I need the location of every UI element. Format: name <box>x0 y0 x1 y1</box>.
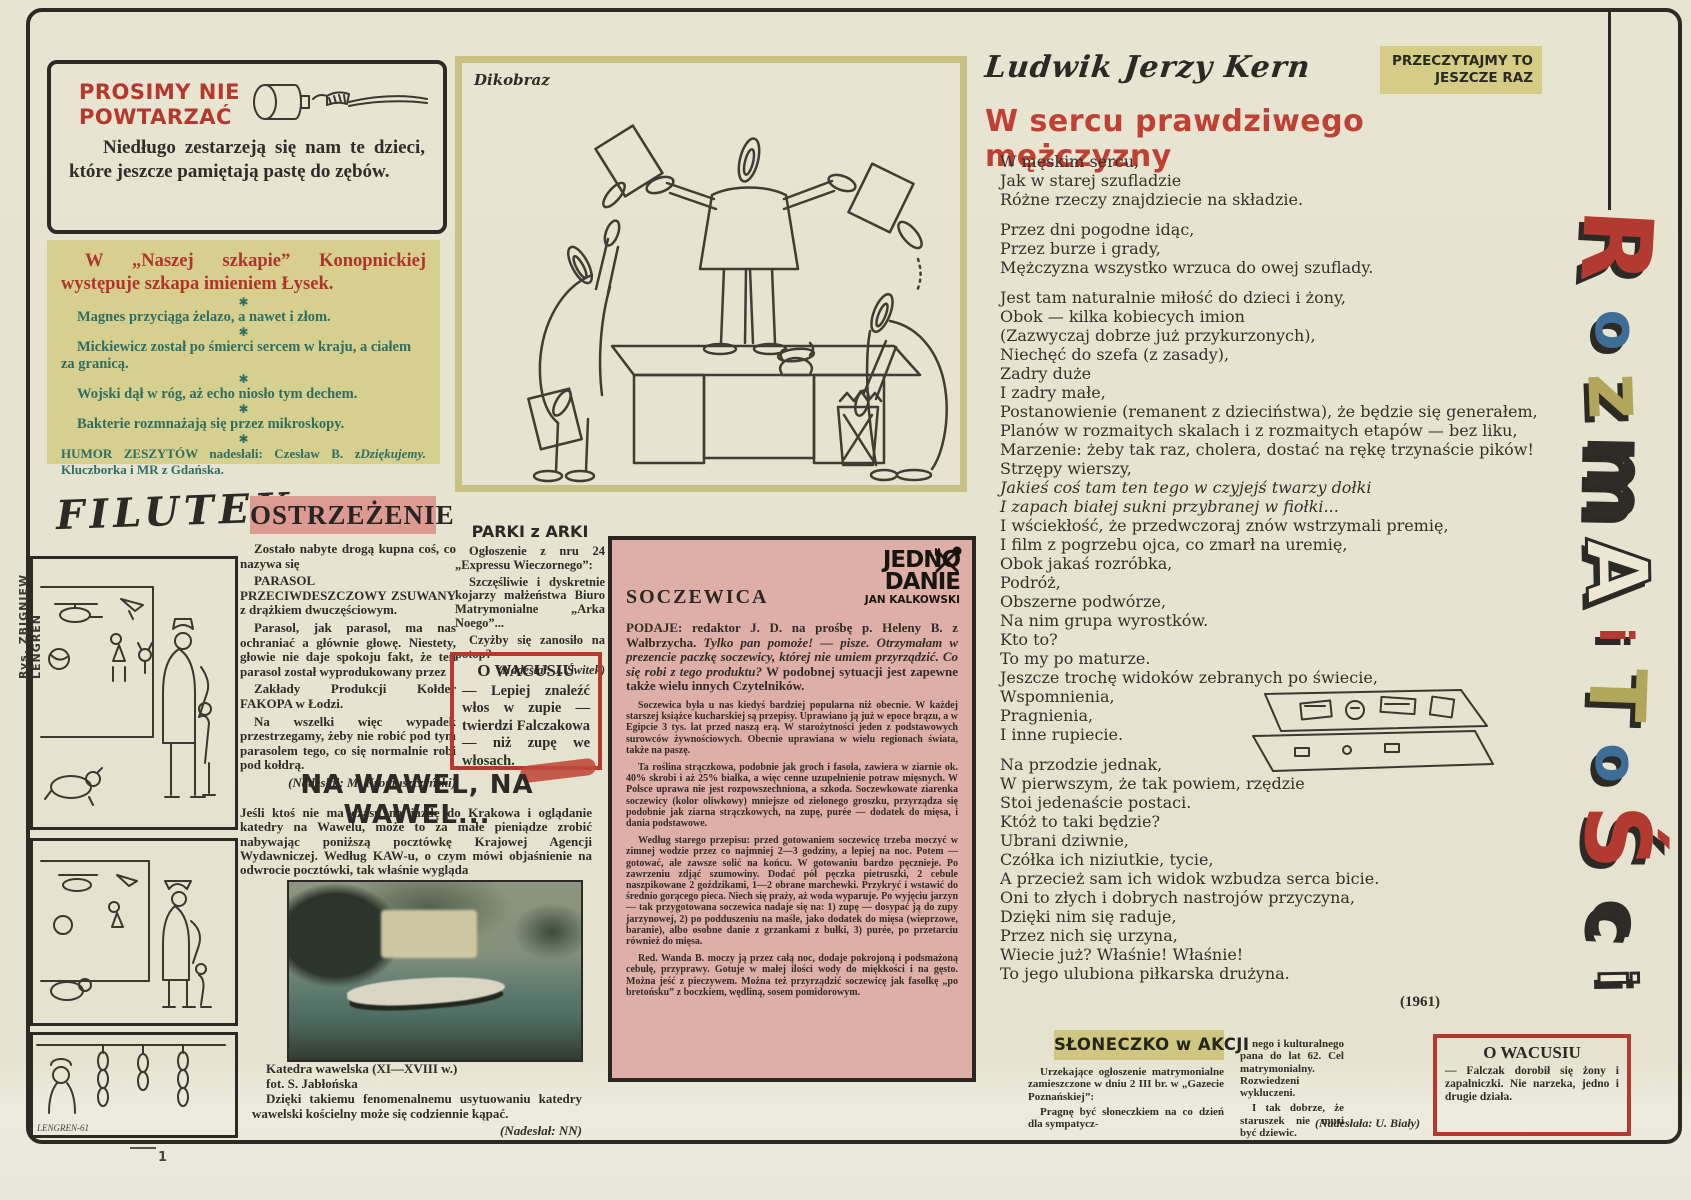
page-bottom-tick <box>130 1147 156 1149</box>
poem-stanza: Jest tam naturalnie miłość do dzieci i ż… <box>1000 288 1560 478</box>
poem-line: Przez dni pogodne idąc, <box>1000 220 1560 239</box>
poem-line: Obok jakaś rozróbka, <box>1000 554 1560 573</box>
filutek-panel-2 <box>30 838 238 1026</box>
page-number: 1 <box>158 1150 167 1165</box>
humor-item: Mickiewicz został po śmierci sercem w kr… <box>61 339 426 371</box>
poem-line: To my po maturze. <box>1000 649 1560 668</box>
poem-line: I wściekłość, że przedwczoraj znów wstrz… <box>1000 516 1560 535</box>
poem-line: Planów w rozmaitych skalach i z rozmaity… <box>1000 421 1560 440</box>
jedno-danie-logo: JEDNO DANIE JAN KALKOWSKI <box>810 550 960 606</box>
rozmaitosci-vertical-title: R o z m A i T o Ś c i <box>1548 0 1684 1100</box>
paperclip-people-cartoon <box>462 63 960 483</box>
filutek-panel-1 <box>30 556 238 830</box>
dikobraz-cartoon-frame: Dikobraz <box>455 56 967 492</box>
sloneczko-column-1: Urzekające ogłoszenie matrymonialne zami… <box>1028 1066 1224 1133</box>
poem-line: Jakieś coś tam ten tego w czyjejś twarzy… <box>1000 478 1560 497</box>
filutek-panel-3: LENGREN-61 <box>30 1032 238 1138</box>
humor-item: Magnes przyciąga żelazo, a nawet i złom. <box>61 309 426 325</box>
poem-line: I film z pogrzebu ojca, co zmarł na urem… <box>1000 535 1560 554</box>
poem-line: Wiecie już? Właśnie! Właśnie! <box>1000 945 1560 964</box>
rozmaitosci-letter: i <box>1589 910 1643 1047</box>
star-icon: ✱ <box>61 374 426 384</box>
poem-line: Oni to złych i dobrych nastrojów przyczy… <box>1000 888 1560 907</box>
poem-line: Różne rzeczy znajdziecie na składzie. <box>1000 190 1560 209</box>
poem-line: A przecież sam ich widok wzbudza serca b… <box>1000 869 1560 888</box>
wawel-postcard-photo <box>287 880 583 1062</box>
poem-line: Strzępy wierszy, <box>1000 459 1560 478</box>
poem-line: Zadry duże <box>1000 364 1560 383</box>
poem-line: Kto to? <box>1000 630 1560 649</box>
o-wacusiu-box-1: O WACUSIU — Lepiej znaleźć włos w zupie … <box>450 652 602 770</box>
wawel-heading: NA WAWEL, NA WAWEL... <box>240 770 594 830</box>
prosimy-body: Niedługo zestarzeją się nam te dzieci, k… <box>69 136 425 184</box>
humor-thanks: Dziękujemy. <box>360 446 426 462</box>
poem-year: (1961) <box>1400 994 1440 1011</box>
sloneczko-heading: SŁONECZKO w AKCJI <box>1054 1030 1224 1060</box>
poem-line: Stoi jedenaście postaci. <box>1000 793 1560 812</box>
poem-line: Na nim grupa wyrostków. <box>1000 611 1560 630</box>
ostrzezenie-heading: OSTRZEŻENIE <box>250 496 436 534</box>
o-wacusiu-heading: O WACUSIU <box>462 661 590 681</box>
poem-line: Marzenie: żeby tak raz, cholera, dostać … <box>1000 440 1560 459</box>
crossed-utensils-icon <box>932 546 962 576</box>
poem-line: (Zazwyczaj dobrze już przykurzonych), <box>1000 326 1560 345</box>
soczewica-lead: PODAJE: redaktor J. D. na prośbę p. Hele… <box>626 621 958 694</box>
poem-line: To jego ulubiona piłkarska drużyna. <box>1000 964 1560 983</box>
sloneczko-credit: (Nadesłała: U. Biały) <box>1270 1116 1420 1131</box>
poem-line: Przez burze i grady, <box>1000 239 1560 258</box>
poem-line: Przez nich się urzyna, <box>1000 926 1560 945</box>
poem-line: Jak w starej szufladzie <box>1000 171 1560 190</box>
poem-stanza: W męskim sercu,Jak w starej szufladzieRó… <box>1000 152 1560 209</box>
humor-item: Wojski dął w róg, aż echo niosło tym dec… <box>61 386 426 402</box>
soczewica-box: JEDNO DANIE JAN KALKOWSKI SOCZEWICA PODA… <box>608 536 976 1082</box>
soczewica-paragraph: Ta roślina strączkowa, podobnie jak groc… <box>626 762 958 829</box>
poem-line: Postanowienie (remanent z dzieciństwa), … <box>1000 402 1560 421</box>
poem-line: Podróż, <box>1000 573 1560 592</box>
soczewica-paragraph: Soczewica była u nas kiedyś bardziej pop… <box>626 700 958 756</box>
poem-line: W męskim sercu, <box>1000 152 1560 171</box>
poem-line: I zadry małe, <box>1000 383 1560 402</box>
humor-item: Bakterie rozmnażają się przez mikroskopy… <box>61 416 426 432</box>
poem-line: Czółka ich niziutkie, tycie, <box>1000 850 1560 869</box>
suitcase-drawer-icon <box>1235 686 1500 786</box>
poem-line: Mężczyzna wszystko wrzuca do owej szufla… <box>1000 258 1560 277</box>
prosimy-title: PROSIMY NIE POWTARZAĆ <box>79 80 240 130</box>
soczewica-paragraph: Red. Wanda B. moczy ją przez całą noc, d… <box>626 953 958 998</box>
o-wacusiu-body: — Lepiej znaleźć włos w zupie — twierdzi… <box>462 683 590 770</box>
poem-line: Obszerne podwórze, <box>1000 592 1560 611</box>
filutek-signature: LENGREN-61 <box>37 1123 89 1133</box>
star-icon: ✱ <box>61 434 426 444</box>
poem-line: Ubrani dziwnie, <box>1000 831 1560 850</box>
humor-items: ✱ Magnes przyciąga żelazo, a nawet i zło… <box>61 297 426 432</box>
star-icon: ✱ <box>61 327 426 337</box>
poem-line: Dzięki nim się raduje, <box>1000 907 1560 926</box>
poem-stanza: Przez dni pogodne idąc,Przez burze i gra… <box>1000 220 1560 277</box>
przeczytajmy-badge: PRZECZYTAJMY TO JESZCZE RAZ <box>1380 46 1542 94</box>
star-icon: ✱ <box>61 297 426 307</box>
parki-heading: PARKI z ARKI <box>455 522 605 541</box>
dikobraz-label: Dikobraz <box>474 71 550 89</box>
wawel-credit: (Nadesłał: NN) <box>252 1124 582 1139</box>
poem-line: Niechęć do szefa (z zasady), <box>1000 345 1560 364</box>
humor-footer: Dziękujemy. HUMOR ZESZYTÓW nadesłali: Cz… <box>61 446 426 477</box>
humor-zeszytow-box: W „Naszej szkapie” Konopnickiej występuj… <box>47 240 440 464</box>
poem-stanza: Na przodzie jednak,W pierwszym, że tak p… <box>1000 755 1560 983</box>
poem-line: Obok — kilka kobiecych imion <box>1000 307 1560 326</box>
poem-line: Jest tam naturalnie miłość do dzieci i ż… <box>1000 288 1560 307</box>
wawel-cathedral <box>381 910 477 958</box>
prosimy-box: PROSIMY NIE POWTARZAĆ Niedługo zestarzej… <box>47 60 447 234</box>
humor-header: W „Naszej szkapie” Konopnickiej występuj… <box>61 250 426 295</box>
poem-line: Któż to taki będzie? <box>1000 812 1560 831</box>
poem-line: Jeszcze trochę widoków zebranych po świe… <box>1000 668 1560 687</box>
poem-stanza-italic: Jakieś coś tam ten tego w czyjejś twarzy… <box>1000 478 1560 516</box>
toothpaste-toothbrush-icon <box>243 72 433 135</box>
ostrzezenie-article: Zostało nabyte drogą kupna coś, co nazyw… <box>240 542 456 791</box>
poem-body: W męskim sercu,Jak w starej szufladzieRó… <box>1000 152 1560 994</box>
star-icon: ✱ <box>61 404 426 414</box>
author-signature: Ludwik Jerzy Kern <box>983 50 1312 85</box>
poem-line: I zapach białej sukni przybranej w fiołk… <box>1000 497 1560 516</box>
boat <box>346 973 505 1010</box>
wawel-caption: Katedra wawelska (XI—XVIII w.) fot. S. J… <box>252 1062 582 1139</box>
soczewica-paragraph: Według starego przepisu: przed gotowanie… <box>626 835 958 947</box>
